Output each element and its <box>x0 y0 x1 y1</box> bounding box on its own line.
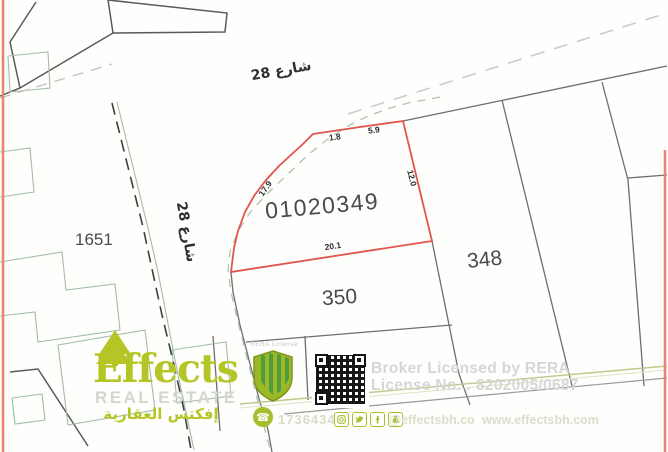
qr-finder-top-left <box>315 354 328 367</box>
qr-finder-top-right <box>353 354 366 367</box>
website-url: www.effectsbh.com <box>482 413 599 427</box>
rera-badge-caption: RERA License <box>250 341 298 348</box>
broker-license-line2: License No. : 8202005/0687 <box>371 377 579 394</box>
instagram-icon <box>334 412 349 427</box>
measurement-left: 17.9 <box>256 179 274 199</box>
broker-license-text: Broker Licensed by RERA License No. : 82… <box>371 360 579 394</box>
twitter-icon <box>352 412 367 427</box>
listing-image: 1651 01020349 348 350 شارع 28 شارع 28 1.… <box>0 0 668 452</box>
street-label-left: شارع 28 <box>173 201 199 264</box>
broker-license-line1: Broker Licensed by RERA <box>371 360 579 377</box>
brand-name: Effects <box>93 349 238 389</box>
measurement-top-left: 1.8 <box>328 131 341 143</box>
plot-label-348: 348 <box>466 246 503 273</box>
brand-arabic-name: إفكتس العقارية <box>93 406 229 423</box>
facebook-icon <box>370 412 385 427</box>
plot-label-1651: 1651 <box>75 230 113 249</box>
measurement-right: 12.0 <box>405 169 419 188</box>
qr-code <box>312 351 369 408</box>
measurement-top-right: 5.9 <box>367 124 380 136</box>
street-label-top: شارع 28 <box>250 58 313 84</box>
measurement-bottom: 20.1 <box>324 240 342 252</box>
rera-shield-icon <box>252 349 294 403</box>
phone-icon: ☎ <box>253 407 273 427</box>
plot-label-350: 350 <box>321 285 358 310</box>
qr-finder-bottom-left <box>315 392 328 405</box>
plot-label-highlight: 01020349 <box>264 188 380 224</box>
social-handle: @effectsbh.co <box>389 413 475 427</box>
